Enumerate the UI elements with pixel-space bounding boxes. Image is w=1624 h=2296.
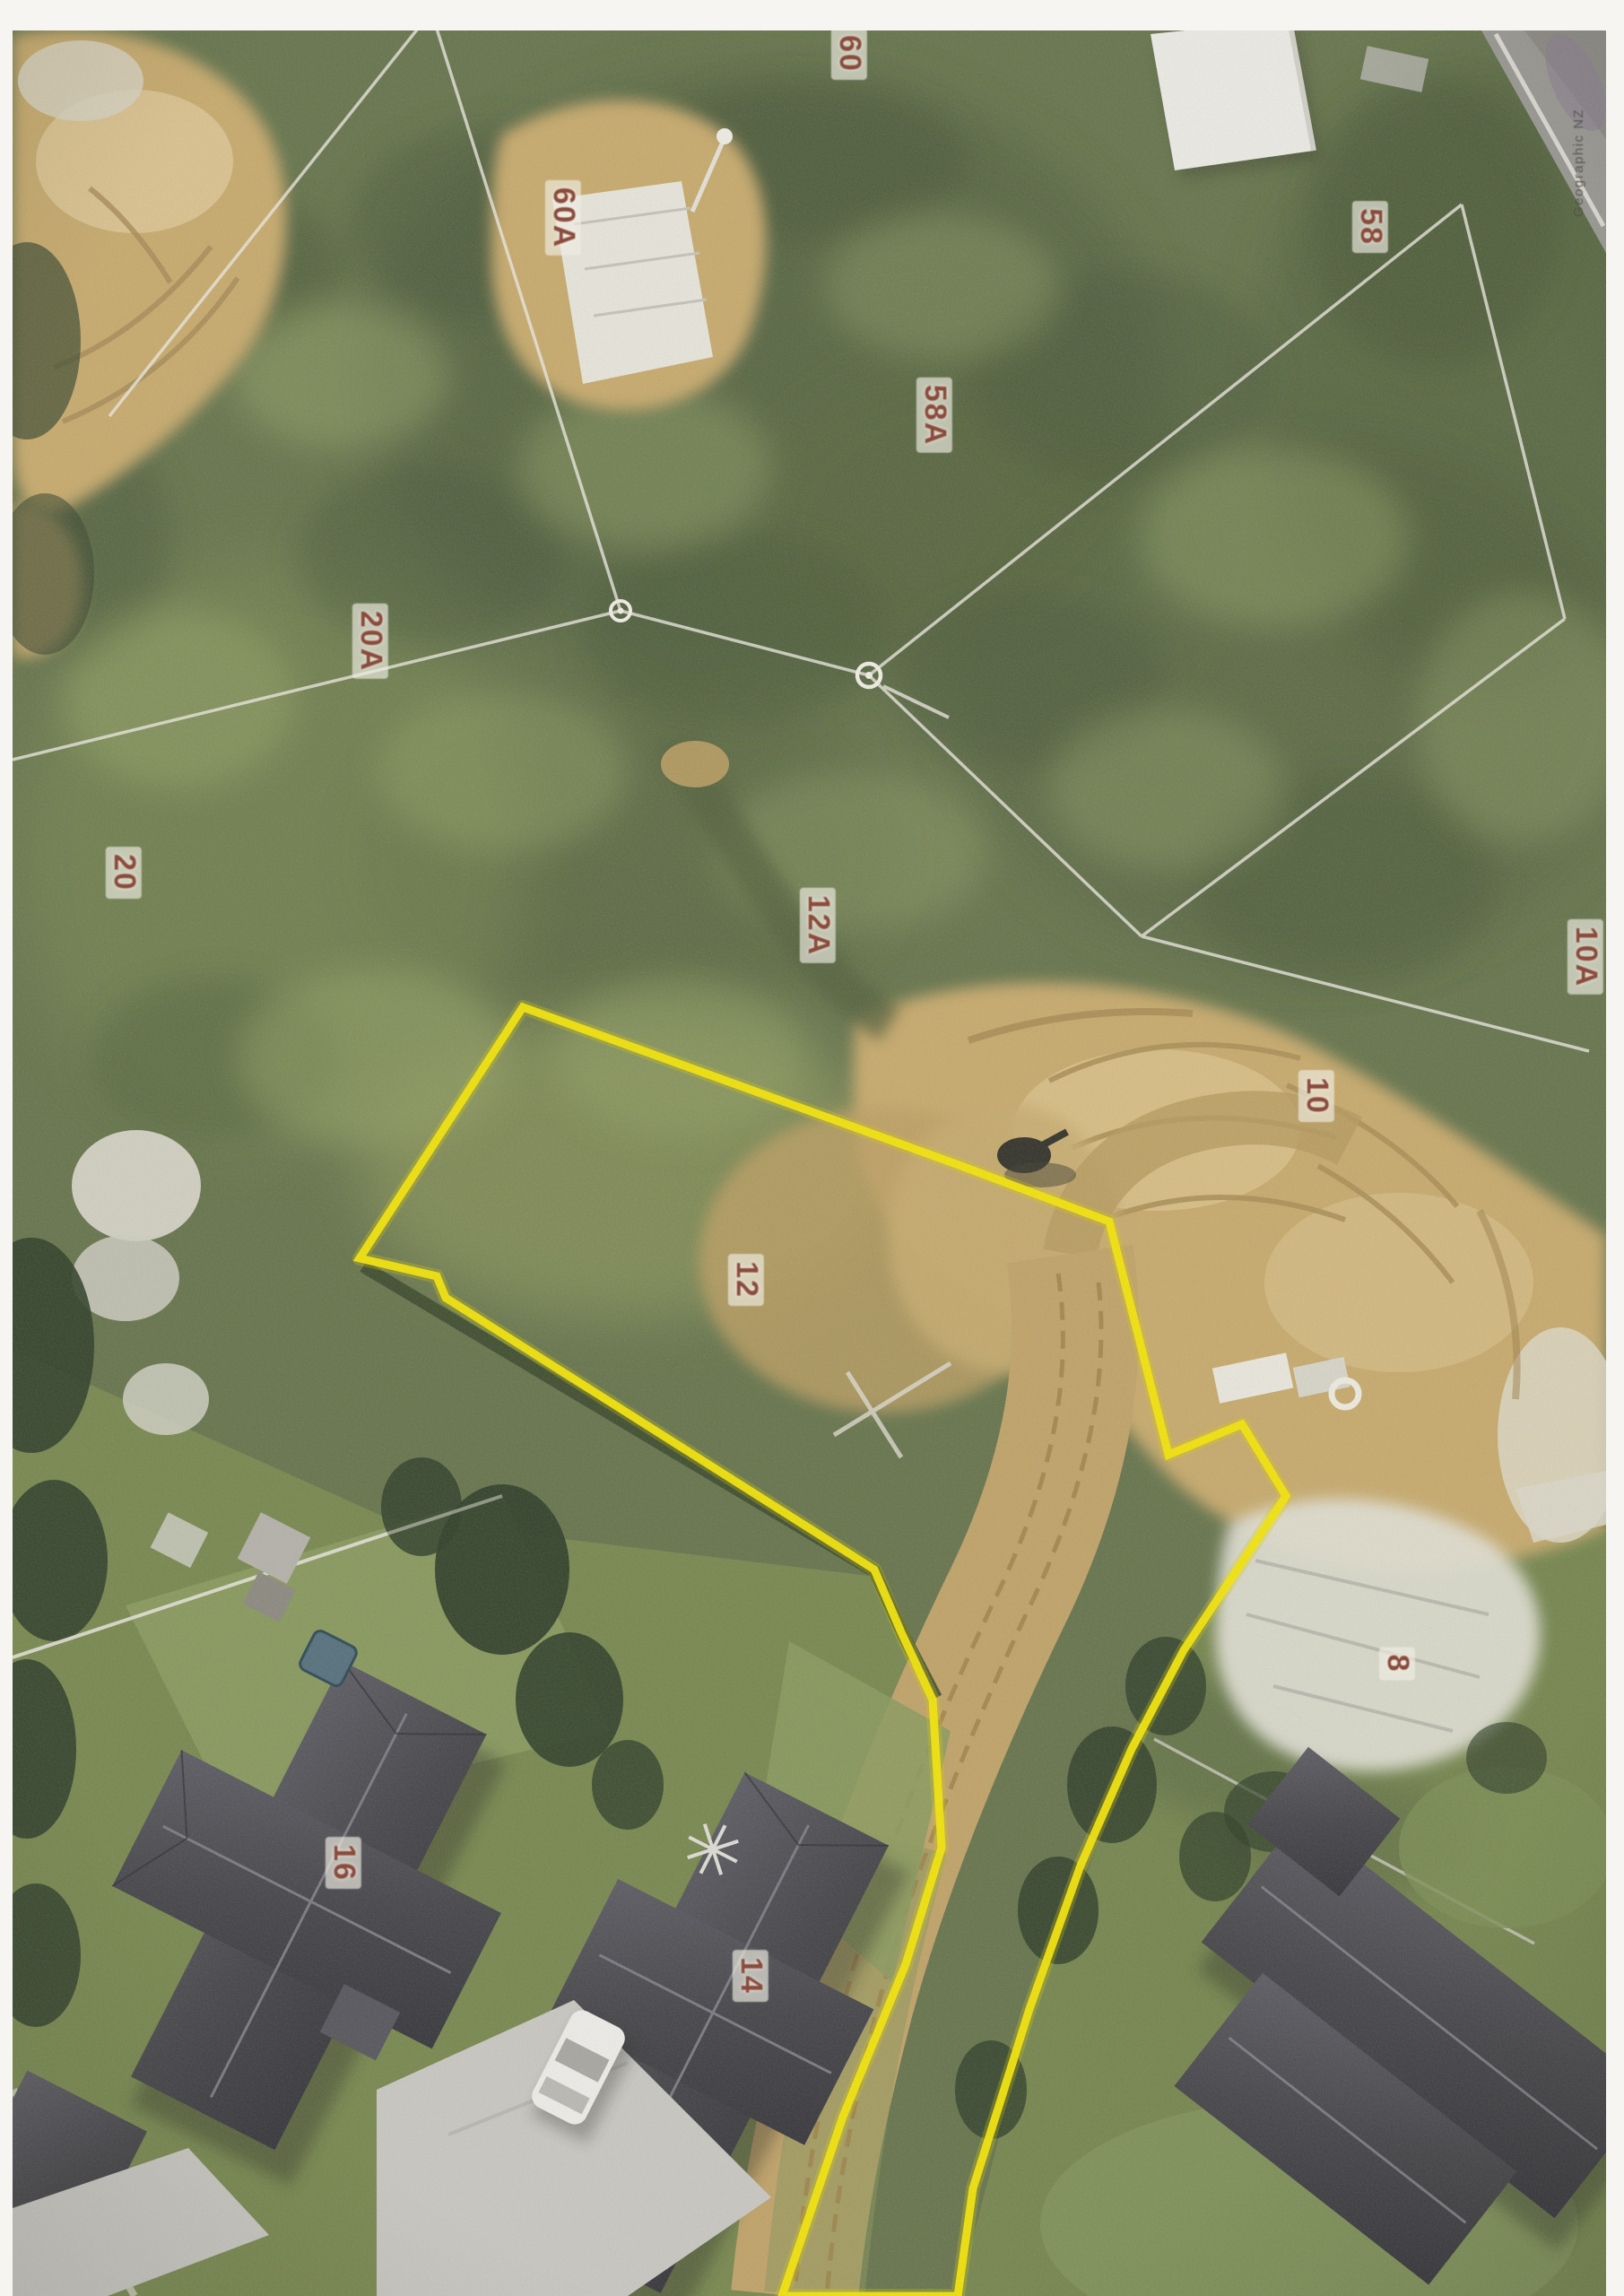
watermark-text: Geographic NZ <box>1571 109 1586 217</box>
vignette-overlay <box>13 30 1606 2296</box>
aerial-photograph: 6060A5858A20A2012A10A101281614 <box>13 30 1606 2296</box>
terrain-art <box>13 30 1606 2296</box>
scanned-aerial-page: { "watermark": { "text": "Geographic NZ"… <box>0 0 1624 2296</box>
